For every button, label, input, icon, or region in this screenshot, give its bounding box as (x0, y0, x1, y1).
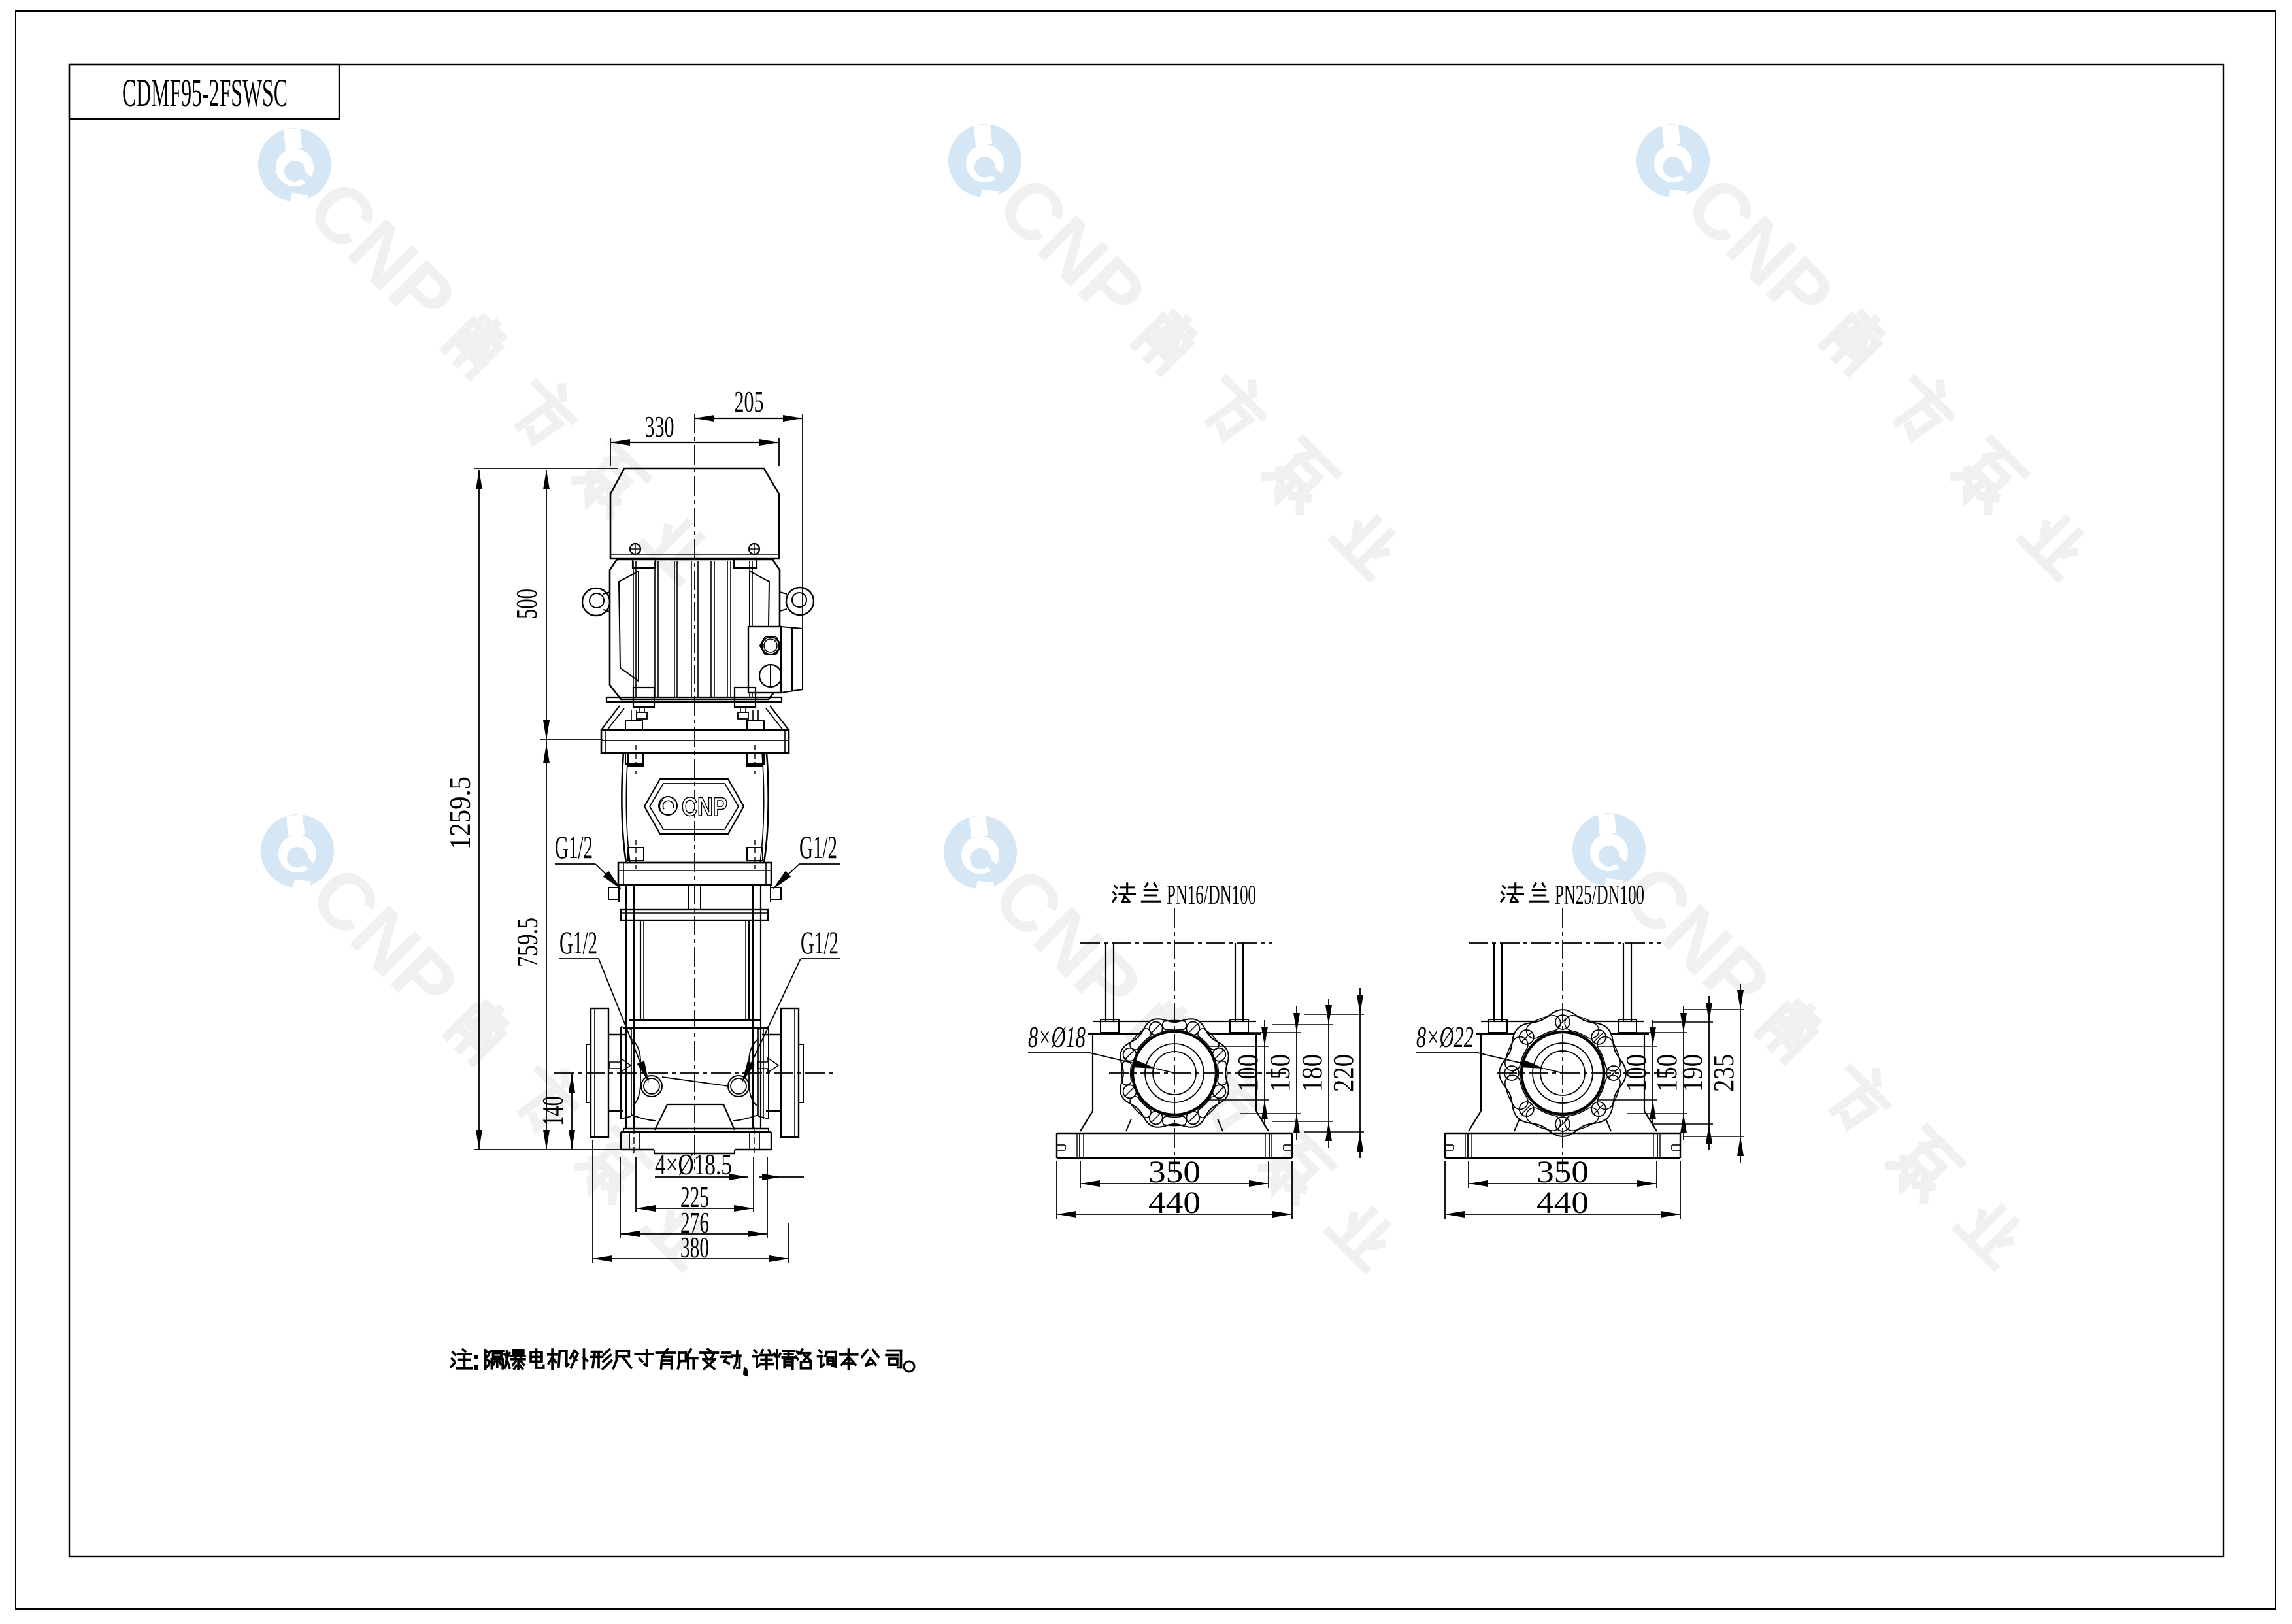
svg-text:G1/2: G1/2 (799, 829, 837, 865)
svg-text:205: 205 (735, 385, 764, 418)
svg-text:8×Ø22: 8×Ø22 (1416, 1020, 1474, 1053)
svg-text:G1/2: G1/2 (801, 924, 839, 961)
svg-text:180: 180 (1296, 1054, 1328, 1092)
svg-text:1259.5: 1259.5 (443, 776, 476, 850)
svg-text:G1/2: G1/2 (559, 924, 597, 961)
svg-text:190: 190 (1676, 1054, 1708, 1092)
svg-text:140: 140 (536, 1096, 569, 1126)
svg-text:350: 350 (1536, 1155, 1589, 1189)
svg-text:100: 100 (1232, 1054, 1264, 1092)
svg-text:CNP: CNP (682, 793, 727, 821)
svg-text:500: 500 (510, 589, 543, 619)
svg-text:759.5: 759.5 (510, 918, 544, 967)
svg-text:8×Ø18: 8×Ø18 (1028, 1020, 1086, 1053)
svg-text:100: 100 (1620, 1054, 1652, 1092)
svg-text:440: 440 (1148, 1185, 1201, 1220)
svg-text:CDMF95-2FSWSC: CDMF95-2FSWSC (122, 71, 288, 114)
svg-text:4×Ø18.5: 4×Ø18.5 (655, 1148, 732, 1181)
svg-text:350: 350 (1148, 1155, 1201, 1189)
svg-text:150: 150 (1264, 1054, 1296, 1092)
svg-text:PN25/DN100: PN25/DN100 (1555, 880, 1644, 910)
svg-text:220: 220 (1327, 1054, 1359, 1092)
svg-text:330: 330 (645, 410, 674, 443)
svg-text:PN16/DN100: PN16/DN100 (1167, 880, 1256, 910)
svg-text:380: 380 (680, 1231, 709, 1264)
svg-text:440: 440 (1536, 1185, 1589, 1220)
svg-text:235: 235 (1708, 1054, 1740, 1092)
svg-text:G1/2: G1/2 (555, 829, 593, 865)
